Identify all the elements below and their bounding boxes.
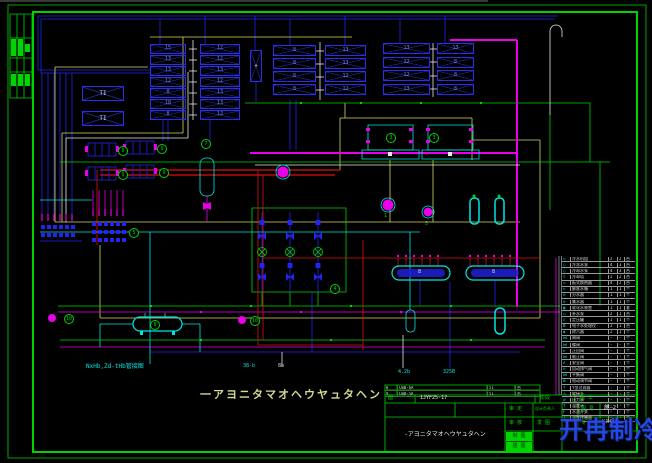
fan-coil-row: 12 8 bbox=[383, 70, 474, 84]
legend-unit: 个 bbox=[624, 367, 635, 371]
legend-spec: 2 bbox=[608, 312, 617, 316]
fan-coil-label: 13 bbox=[403, 46, 409, 51]
legend-qty: 2 bbox=[617, 257, 624, 261]
strip-stage-label: 阶段 bbox=[540, 396, 550, 401]
legend-name: 截止阀 bbox=[570, 355, 608, 359]
legend-qty: - bbox=[617, 336, 624, 340]
fan-coil-row: 8 12 bbox=[273, 71, 366, 84]
legend-symbol: Ø bbox=[562, 324, 570, 328]
legend-qty: - bbox=[617, 398, 624, 402]
schedule-name: CWB-6A bbox=[397, 386, 487, 390]
fan-coil-label: 13 bbox=[165, 57, 171, 62]
fan-coil-unit: 12 bbox=[383, 70, 430, 81]
legend-name: 集水器 bbox=[570, 300, 608, 304]
fan-coil-label: 12 bbox=[342, 74, 348, 79]
fan-coil-label: 8 bbox=[166, 90, 169, 95]
legend-spec: - bbox=[608, 343, 617, 347]
fan-coil-label: 8 bbox=[454, 73, 457, 78]
legend-name: 止回阀 bbox=[570, 349, 608, 353]
cad-sheet[interactable]: 15 12 13 12 13 13 12 12 bbox=[0, 0, 652, 463]
legend-qty: 1 bbox=[617, 318, 624, 322]
watermark: 开冉制冷 bbox=[512, 405, 652, 449]
legend-name: 分水器 bbox=[570, 293, 608, 297]
ahu-box-top: TI bbox=[82, 86, 124, 101]
fan-coil-label: 12 bbox=[342, 87, 348, 92]
pipe-label: 325B bbox=[443, 370, 455, 375]
fan-coil-row: 13 13 bbox=[150, 66, 240, 77]
watermark-logo-icon bbox=[512, 405, 556, 449]
fan-coil-unit: 13 bbox=[383, 84, 430, 95]
legend-symbol: ▣ bbox=[562, 306, 570, 310]
fan-coil-row: 12 12 bbox=[150, 77, 240, 88]
legend-spec: - bbox=[608, 373, 617, 377]
fan-coil-label: 13 bbox=[452, 46, 458, 51]
legend-qty: - bbox=[617, 343, 624, 347]
legend-name: 蝶阀 bbox=[570, 343, 608, 347]
legend-unit: 台 bbox=[624, 324, 635, 328]
legend-qty: 3 bbox=[617, 269, 624, 273]
fan-coil-row: 8 12 bbox=[150, 110, 240, 121]
fan-coil-row: 13 8 bbox=[383, 84, 474, 98]
fan-coil-label: 12 bbox=[403, 73, 409, 78]
legend-spec: - bbox=[608, 398, 617, 402]
legend-unit: 个 bbox=[624, 293, 635, 297]
legend-name: 定压罐 bbox=[570, 318, 608, 322]
watermark-text: 开冉制冷 bbox=[559, 410, 652, 445]
fan-coil-label: 13 bbox=[217, 101, 223, 106]
pipe-note: NxHb,Zd-tHb管接图 bbox=[86, 364, 144, 370]
legend-name: 电子水处理仪 bbox=[570, 324, 608, 328]
legend-spec: 1 bbox=[608, 318, 617, 322]
legend-unit: 个 bbox=[624, 398, 635, 402]
legend-qty: - bbox=[617, 355, 624, 359]
legend-unit: 个 bbox=[624, 361, 635, 365]
schedule-row: 9 CWB-5A 51 台 bbox=[385, 391, 540, 397]
fan-coil-label: 8 bbox=[293, 48, 296, 53]
fan-coil-unit: 13 bbox=[150, 66, 186, 76]
fan-coil-label: 13 bbox=[342, 48, 348, 53]
fan-coil-unit: 8 bbox=[150, 88, 186, 98]
legend-spec: 4 bbox=[608, 263, 617, 267]
fan-coil-unit: 13 bbox=[325, 45, 366, 56]
legend-symbol: ≭ bbox=[562, 361, 570, 365]
legend-name: 冷却水泵 bbox=[570, 269, 608, 273]
legend-unit: 台 bbox=[624, 312, 635, 316]
legend-symbol: ⋈ bbox=[562, 343, 570, 347]
equipment-tag: 9 bbox=[118, 170, 128, 180]
fan-coil-label: 12 bbox=[403, 60, 409, 65]
ahu-box-bottom: TI bbox=[82, 111, 124, 126]
fan-coil-row: 8 12 bbox=[273, 84, 366, 97]
legend-name: 冷水机组 bbox=[570, 257, 608, 261]
fan-coil-label: 8 bbox=[293, 87, 296, 92]
legend-symbol: ○ bbox=[562, 263, 570, 267]
equipment-tag: 4 bbox=[330, 284, 340, 294]
fan-coil-row: 13 12 bbox=[150, 55, 240, 66]
fan-coil-unit: 12 bbox=[200, 44, 240, 54]
title-block-drawing-name: -アヨニタマオヘウヤュタヘン bbox=[388, 429, 502, 438]
legend-symbol: ⌀ bbox=[562, 398, 570, 402]
fan-coil-label: 13 bbox=[403, 87, 409, 92]
legend-unit: 个 bbox=[624, 379, 635, 383]
legend-symbol: ▭ bbox=[562, 281, 570, 285]
fan-coil-bank-c: 13 13 12 8 12 8 13 8 bbox=[383, 43, 474, 97]
valve-manifolds bbox=[40, 209, 126, 242]
fan-coil-unit: 8 bbox=[273, 45, 316, 56]
legend-qty: 1 bbox=[617, 324, 624, 328]
legend-spec: 2 bbox=[608, 324, 617, 328]
pipe-label: 8b bbox=[278, 364, 284, 369]
legend-qty: 1 bbox=[617, 293, 624, 297]
legend-spec: - bbox=[608, 355, 617, 359]
fan-coil-label: 8 bbox=[166, 112, 169, 117]
fan-coil-label: 12 bbox=[165, 79, 171, 84]
pipe-label: 38-b bbox=[243, 364, 255, 369]
legend-unit: 个 bbox=[624, 287, 635, 291]
legend-qty: 3 bbox=[617, 263, 624, 267]
legend-unit: 个 bbox=[624, 349, 635, 353]
legend-symbol: ⊖ bbox=[562, 300, 570, 304]
fan-coil-label: 18 bbox=[165, 101, 171, 106]
tank-label: 8 bbox=[418, 270, 421, 275]
legend-name: 安全阀 bbox=[570, 361, 608, 365]
fan-coil-unit: 13 bbox=[200, 88, 240, 98]
legend-symbol: ∿ bbox=[562, 392, 570, 396]
legend-qty: 1 bbox=[617, 306, 624, 310]
legend-symbol: ○ bbox=[562, 312, 570, 316]
legend-spec: 1 bbox=[608, 293, 617, 297]
tank-label: 8 bbox=[492, 270, 495, 275]
fan-coil-unit: 8 bbox=[150, 110, 186, 120]
legend-unit: 个 bbox=[624, 386, 635, 390]
air-unit-label: + bbox=[254, 63, 258, 70]
fan-coil-row: 15 12 bbox=[150, 44, 240, 55]
legend-qty: - bbox=[617, 373, 624, 377]
fan-coil-row: 13 13 bbox=[383, 43, 474, 57]
legend-spec: - bbox=[608, 361, 617, 365]
fan-coil-label: 12 bbox=[217, 112, 223, 117]
fan-coil-row: 8 13 bbox=[273, 58, 366, 71]
legend-qty: - bbox=[617, 392, 624, 396]
fan-coil-unit: 13 bbox=[383, 43, 430, 54]
strip-stage-value: 施 工 bbox=[580, 396, 593, 401]
legend-spec: - bbox=[608, 336, 617, 340]
equipment-tag: 7 bbox=[201, 139, 211, 149]
legend-unit: 台 bbox=[624, 257, 635, 261]
drawing-title: 一アヨニタマオヘウヤュタヘン bbox=[200, 386, 382, 402]
legend-spec: 1 bbox=[608, 300, 617, 304]
fan-coil-unit: 8 bbox=[273, 84, 316, 95]
legend-qty: 1 bbox=[617, 312, 624, 316]
fan-coil-label: 13 bbox=[342, 61, 348, 66]
chiller-tag: 3 bbox=[429, 133, 439, 143]
air-unit: + bbox=[250, 50, 262, 82]
legend-unit: 台 bbox=[624, 281, 635, 285]
pump-number: 1 bbox=[384, 214, 387, 219]
legend-name: 闸阀 bbox=[570, 336, 608, 340]
fan-coil-unit: 13 bbox=[325, 58, 366, 69]
fan-coil-unit: 8 bbox=[437, 57, 474, 68]
legend-unit: 个 bbox=[624, 336, 635, 340]
equipment-tag: 9 bbox=[159, 168, 169, 178]
schedule-unit: 台 bbox=[515, 392, 540, 396]
ahu-label: TI bbox=[99, 115, 106, 122]
legend-unit: 个 bbox=[624, 373, 635, 377]
equipment-tag: 9 bbox=[157, 144, 167, 154]
fan-coil-row: 18 13 bbox=[150, 99, 240, 110]
strip-label: 图 bbox=[388, 396, 393, 401]
legend-qty: - bbox=[617, 349, 624, 353]
legend-qty: - bbox=[617, 379, 624, 383]
fan-coil-unit: 8 bbox=[273, 71, 316, 82]
fan-coil-unit: 12 bbox=[325, 84, 366, 95]
legend-spec: - bbox=[608, 386, 617, 390]
legend-name: 软化水装置 bbox=[570, 306, 608, 310]
legend-name: 自动排气阀 bbox=[570, 367, 608, 371]
legend-symbol: ○ bbox=[562, 269, 570, 273]
legend-symbol: ▯ bbox=[562, 318, 570, 322]
fan-coil-label: 13 bbox=[217, 90, 223, 95]
legend-name: 补水泵 bbox=[570, 312, 608, 316]
pump-number: 5 bbox=[425, 222, 428, 227]
fan-coil-label: 13 bbox=[217, 68, 223, 73]
legend-qty: - bbox=[617, 367, 624, 371]
legend-name: 冷冻水泵 bbox=[570, 263, 608, 267]
fan-coil-unit: 13 bbox=[150, 55, 186, 65]
legend-name: 电动调节阀 bbox=[570, 379, 608, 383]
legend-qty: - bbox=[617, 361, 624, 365]
legend-spec: - bbox=[608, 392, 617, 396]
legend-unit: 个 bbox=[624, 355, 635, 359]
legend-table: ▭ 冷水机组 2 2 台 ○ 冷冻水泵 4 3 台 ○ 冷却水泵 4 3 台 bbox=[562, 256, 635, 422]
pumps bbox=[48, 165, 504, 324]
fan-coil-unit: 8 bbox=[437, 70, 474, 81]
legend-symbol: ◇ bbox=[562, 287, 570, 291]
fan-coil-unit: 12 bbox=[200, 110, 240, 120]
fan-coil-label: 12 bbox=[217, 46, 223, 51]
legend-unit: 台 bbox=[624, 263, 635, 267]
legend-symbol: ◆ bbox=[562, 330, 570, 334]
fan-coil-label: 8 bbox=[454, 60, 457, 65]
schedule-unit: 台 bbox=[515, 386, 540, 390]
schedule-qty: 51 bbox=[487, 386, 515, 390]
legend-spec: 2 bbox=[608, 330, 617, 334]
legend-name: 板式换热器 bbox=[570, 281, 608, 285]
legend-symbol: ⊙ bbox=[562, 367, 570, 371]
fan-coil-label: 13 bbox=[165, 68, 171, 73]
legend-spec: 4 bbox=[608, 281, 617, 285]
legend-spec: 2 bbox=[608, 275, 617, 279]
fan-coil-unit: 15 bbox=[150, 44, 186, 54]
equipment-tag: 8 bbox=[150, 320, 160, 330]
fan-coil-label: 8 bbox=[293, 61, 296, 66]
fan-coil-bank-b: 8 13 8 13 8 12 8 12 bbox=[273, 45, 366, 97]
legend-name: Y型过滤器 bbox=[570, 386, 608, 390]
legend-qty: - bbox=[617, 386, 624, 390]
legend-name: 膨胀水箱 bbox=[570, 287, 608, 291]
legend-unit: 个 bbox=[624, 300, 635, 304]
pipe-label: 4.2b bbox=[398, 370, 410, 375]
fan-coil-label: 8 bbox=[293, 74, 296, 79]
legend-symbol: ⋈ bbox=[562, 355, 570, 359]
schedule-tail: 8 CWB-6A 51 台 9 CWB-5A 51 台 bbox=[385, 385, 540, 397]
legend-qty: 2 bbox=[617, 281, 624, 285]
schedule-index: 8 bbox=[385, 386, 397, 390]
fan-coil-unit: 18 bbox=[150, 99, 186, 109]
fan-coil-unit: 12 bbox=[325, 71, 366, 82]
fan-coil-unit: 13 bbox=[200, 66, 240, 76]
fan-coil-unit: 8 bbox=[437, 84, 474, 95]
ahu-label: TI bbox=[99, 90, 106, 97]
legend-spec: - bbox=[608, 379, 617, 383]
fan-coil-unit: 8 bbox=[273, 58, 316, 69]
fan-coil-label: 8 bbox=[454, 87, 457, 92]
legend-spec: 2 bbox=[608, 257, 617, 261]
schedule-qty: 51 bbox=[487, 392, 515, 396]
fan-coil-unit: 12 bbox=[150, 77, 186, 87]
legend-name: 冷却塔 bbox=[570, 275, 608, 279]
legend-qty: 2 bbox=[617, 275, 624, 279]
legend-unit: 个 bbox=[624, 343, 635, 347]
legend-symbol: ⋈ bbox=[562, 373, 570, 377]
legend-name: 除污器 bbox=[570, 330, 608, 334]
valve-grid bbox=[258, 212, 323, 292]
legend-unit: 个 bbox=[624, 330, 635, 334]
legend-spec: 1 bbox=[608, 306, 617, 310]
legend-spec: - bbox=[608, 367, 617, 371]
fan-coil-unit: 12 bbox=[200, 55, 240, 65]
legend-symbol: Y bbox=[562, 386, 570, 390]
legend-name: 平衡阀 bbox=[570, 373, 608, 377]
fan-coil-unit: 12 bbox=[200, 77, 240, 87]
strip-code: 1JYF25-17 bbox=[420, 396, 447, 401]
legend-spec: 1 bbox=[608, 287, 617, 291]
fan-coil-label: 12 bbox=[217, 79, 223, 84]
legend-qty: 1 bbox=[617, 330, 624, 334]
fan-coil-bank-a: 15 12 13 12 13 13 12 12 bbox=[150, 44, 240, 121]
fan-coil-label: 12 bbox=[217, 57, 223, 62]
legend-unit: 台 bbox=[624, 269, 635, 273]
fan-coil-unit: 13 bbox=[437, 43, 474, 54]
legend-qty: 1 bbox=[617, 287, 624, 291]
legend-symbol: ▭ bbox=[562, 257, 570, 261]
legend-symbol: ⊳ bbox=[562, 349, 570, 353]
legend-unit: 台 bbox=[624, 275, 635, 279]
legend-spec: - bbox=[608, 349, 617, 353]
legend-symbol: ⊠ bbox=[562, 379, 570, 383]
fan-coil-row: 8 13 bbox=[150, 88, 240, 99]
legend-symbol: ⊖ bbox=[562, 293, 570, 297]
equipment-tag: 5 bbox=[129, 228, 139, 238]
legend-unit: 个 bbox=[624, 392, 635, 396]
chiller-tag: 3 bbox=[386, 133, 396, 143]
fan-coil-row: 12 8 bbox=[383, 57, 474, 71]
legend-unit: 套 bbox=[624, 306, 635, 310]
legend-symbol: ⋈ bbox=[562, 336, 570, 340]
legend-spec: 4 bbox=[608, 269, 617, 273]
legend-symbol: ▽ bbox=[562, 275, 570, 279]
horizontal-tanks bbox=[133, 255, 524, 335]
legend-unit: 个 bbox=[624, 318, 635, 322]
fan-coil-unit: 12 bbox=[383, 57, 430, 68]
legend-qty: 1 bbox=[617, 300, 624, 304]
equipment-tag: 10 bbox=[64, 314, 74, 324]
equipment-tag: 10 bbox=[250, 316, 260, 326]
fan-coil-row: 8 13 bbox=[273, 45, 366, 58]
equipment-tag: 9 bbox=[118, 146, 128, 156]
fan-coil-label: 15 bbox=[165, 46, 171, 51]
fan-coil-unit: 13 bbox=[200, 99, 240, 109]
